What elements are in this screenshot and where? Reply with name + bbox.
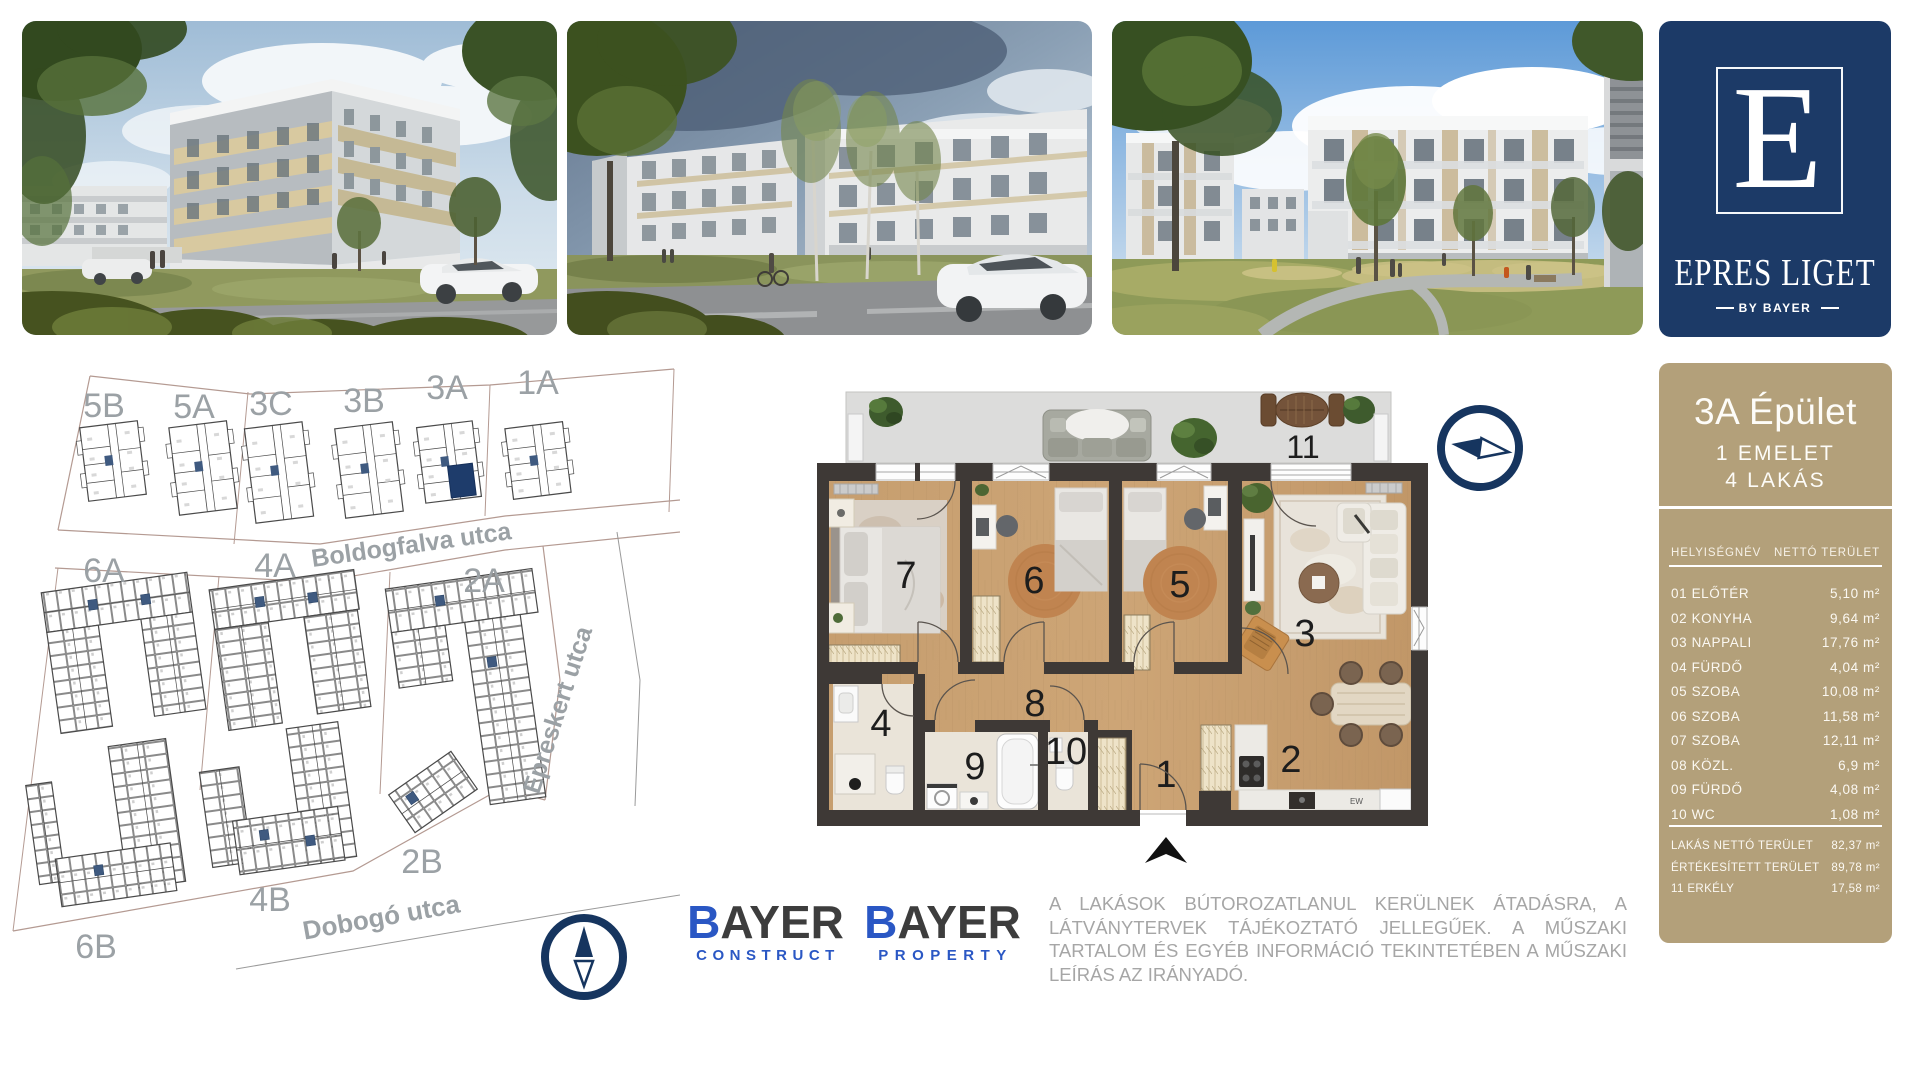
svg-text:5A: 5A [173,388,215,426]
svg-text:3A: 3A [426,369,468,407]
svg-text:2: 2 [1280,739,1301,781]
svg-text:3C: 3C [249,385,292,423]
svg-text:6B: 6B [75,928,117,966]
svg-text:3B: 3B [343,382,385,420]
svg-text:9: 9 [964,746,985,788]
svg-text:4A: 4A [254,547,296,585]
svg-text:2A: 2A [463,562,505,600]
svg-text:1: 1 [1155,754,1176,796]
svg-text:1A: 1A [517,364,559,402]
svg-text:10: 10 [1045,731,1087,773]
svg-text:EW: EW [1350,797,1363,806]
svg-text:2B: 2B [401,843,443,881]
svg-text:7: 7 [895,555,916,597]
svg-text:6A: 6A [83,552,125,590]
svg-text:4B: 4B [249,881,291,919]
svg-text:Dobogó utca: Dobogó utca [300,888,462,945]
svg-text:11: 11 [1286,429,1319,465]
svg-text:5: 5 [1169,564,1190,606]
svg-text:6: 6 [1023,560,1044,602]
svg-text:3: 3 [1294,613,1315,655]
svg-text:8: 8 [1024,683,1045,725]
svg-text:5B: 5B [83,387,125,425]
svg-text:4: 4 [870,703,891,745]
